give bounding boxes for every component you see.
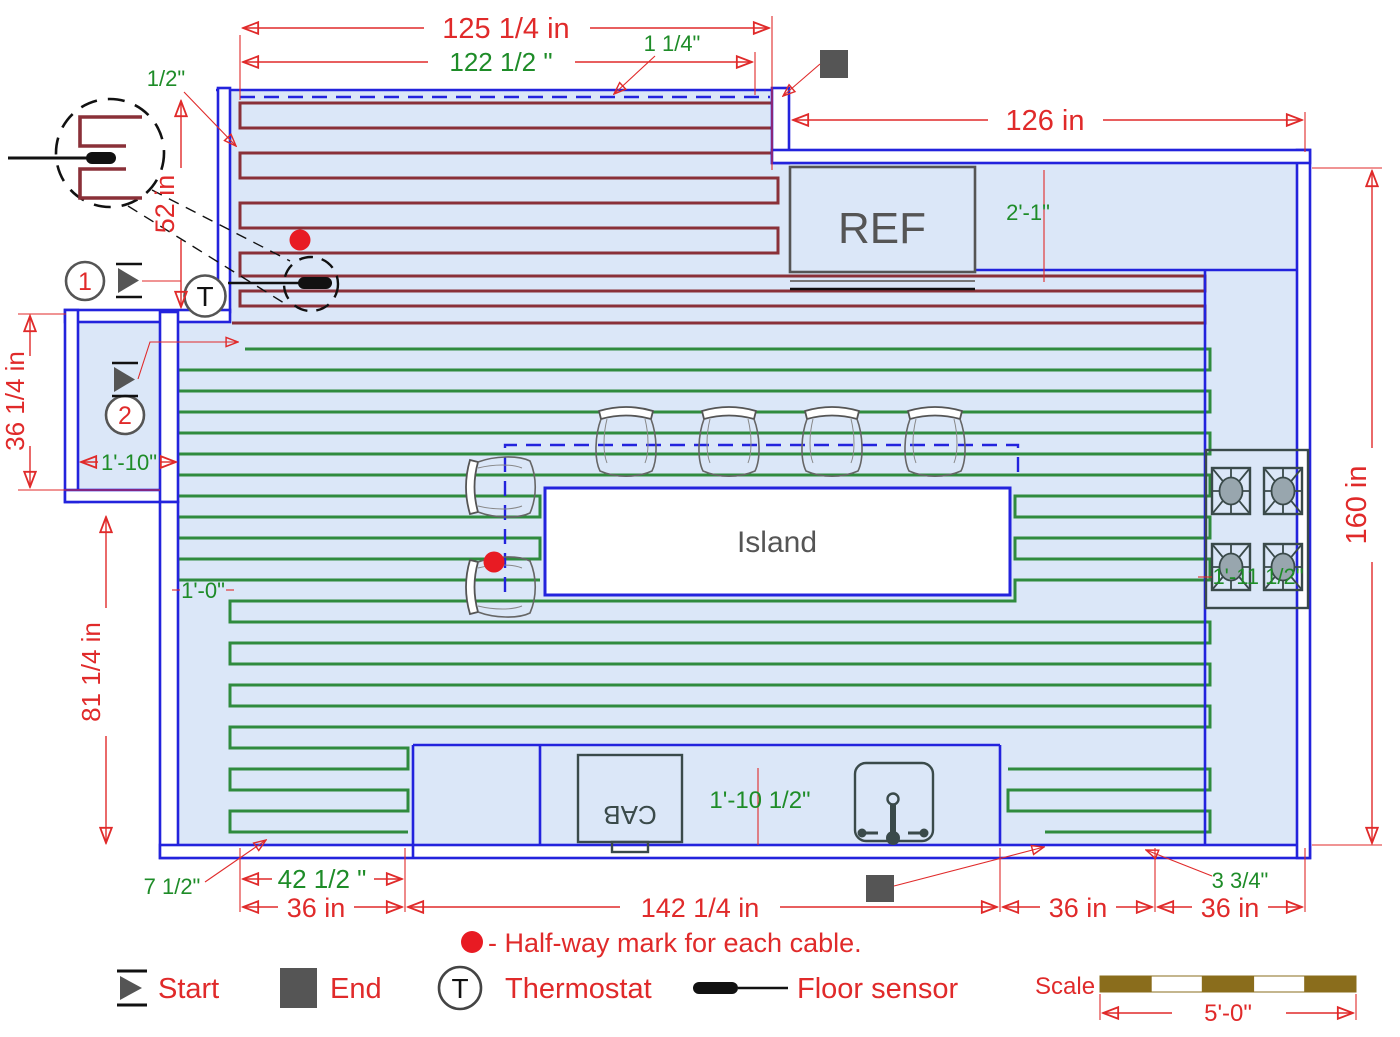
thermostat-marker: T: [185, 276, 226, 317]
legend-floor-sensor-label: Floor sensor: [797, 973, 959, 1005]
dim-wall-offset: 1/2": [147, 66, 185, 91]
dim-bottom-mid: 142 1/4 in: [641, 893, 760, 923]
dim-bottom-left: 36 in: [287, 893, 346, 923]
dim-stove-clearance: 1'-11 1/2": [1212, 564, 1303, 589]
legend-start-label: Start: [158, 973, 219, 1005]
dim-bottom-right1: 36 in: [1049, 893, 1108, 923]
dim-stove-offset: 3 3/4": [1212, 868, 1269, 893]
plan-svg: REF Island CAB: [0, 0, 1400, 1037]
start-marker-1: 1: [66, 262, 181, 300]
floor-heating-plan: REF Island CAB: [0, 0, 1400, 1037]
halfway-dot-cable1: [290, 230, 311, 251]
svg-text:T: T: [451, 973, 468, 1004]
dim-alcove-width: 1'-10": [101, 450, 157, 475]
thermostat-legend-icon: T: [439, 967, 481, 1009]
dim-left-lower: 81 1/4 in: [76, 622, 106, 722]
ref-box: REF: [790, 167, 975, 289]
dim-cable-offset: 1 1/4": [644, 31, 701, 56]
dim-sink-clearance: 1'-10 1/2": [709, 787, 810, 814]
island-box: Island: [545, 488, 1010, 595]
halfway-legend-dot: [461, 931, 483, 953]
floor-sensor-legend-icon: [693, 982, 788, 994]
legend: - Half-way mark for each cable. Start En…: [117, 928, 1356, 1027]
dim-left-upper: 52 in: [150, 175, 180, 234]
dim-top-right: 126 in: [1005, 105, 1084, 137]
halfway-dot-cable2: [484, 552, 505, 573]
scale-length-label: 5'-0": [1204, 1000, 1252, 1027]
thermostat-letter: T: [196, 281, 213, 312]
cable2-number: 2: [118, 402, 132, 430]
end-legend-icon: [280, 968, 317, 1008]
dim-cabinet-width: 42 1/2 ": [278, 864, 367, 894]
dim-right-side: 160 in: [1341, 465, 1373, 544]
dim-top-outer: 125 1/4 in: [442, 13, 569, 45]
legend-scale-label: Scale: [1035, 973, 1095, 1000]
cab-label: CAB: [603, 800, 656, 830]
legend-end-label: End: [330, 973, 382, 1005]
island-label: Island: [737, 526, 817, 559]
scale-bar: [1100, 976, 1356, 992]
dim-corner-offset: 7 1/2": [144, 874, 201, 899]
dim-top-inner: 122 1/2 ": [449, 47, 552, 77]
ref-label: REF: [838, 204, 926, 253]
dim-bottom-right2: 36 in: [1201, 893, 1260, 923]
cable1-number: 1: [78, 268, 92, 296]
dim-ref-clearance: 2'-1": [1006, 200, 1050, 225]
end-marker-top: [783, 50, 848, 96]
legend-thermostat-label: Thermostat: [505, 973, 652, 1005]
legend-halfway-label: - Half-way mark for each cable.: [488, 928, 862, 958]
dim-corridor-width: 1'-0": [181, 578, 225, 603]
dim-left-alcove: 36 1/4 in: [0, 351, 30, 451]
start-legend-icon: [117, 971, 147, 1005]
